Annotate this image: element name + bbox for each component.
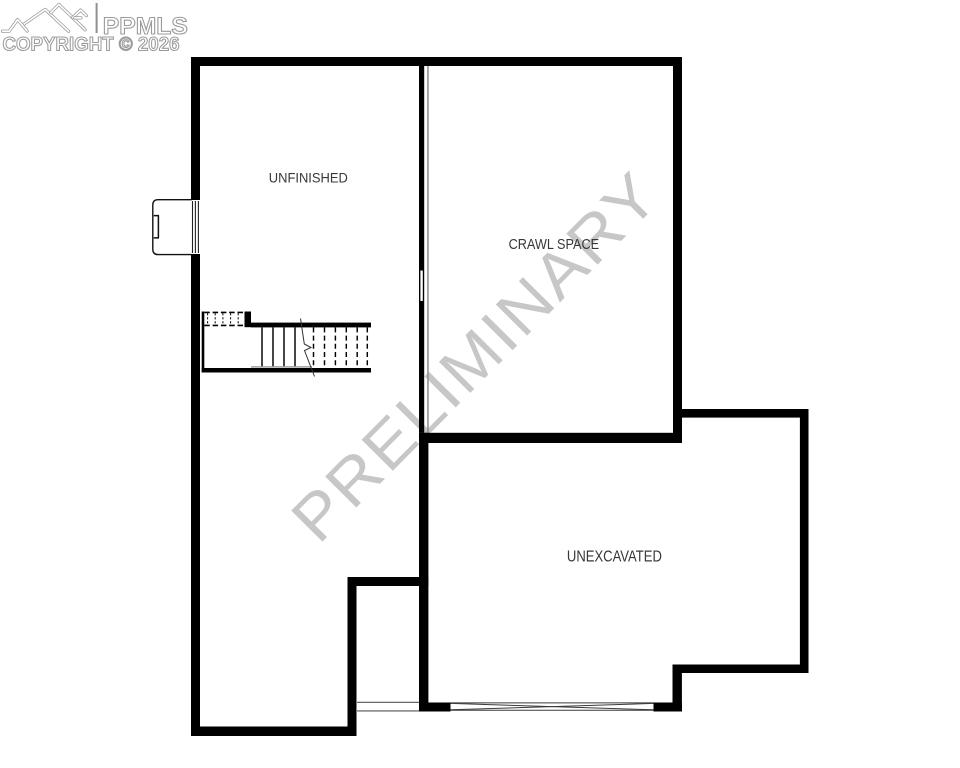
svg-text:CRAWL SPACE: CRAWL SPACE [509, 236, 599, 253]
svg-text:UNFINISHED: UNFINISHED [269, 169, 348, 185]
svg-text:UNEXCAVATED: UNEXCAVATED [567, 549, 662, 566]
svg-text:COPYRIGHT © 2026: COPYRIGHT © 2026 [3, 34, 180, 56]
